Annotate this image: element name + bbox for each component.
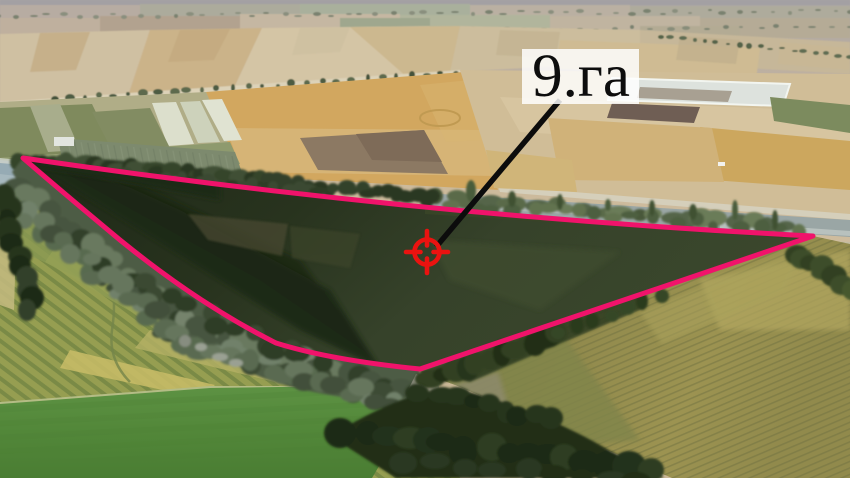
svg-text:9.га: 9.га: [532, 43, 630, 110]
